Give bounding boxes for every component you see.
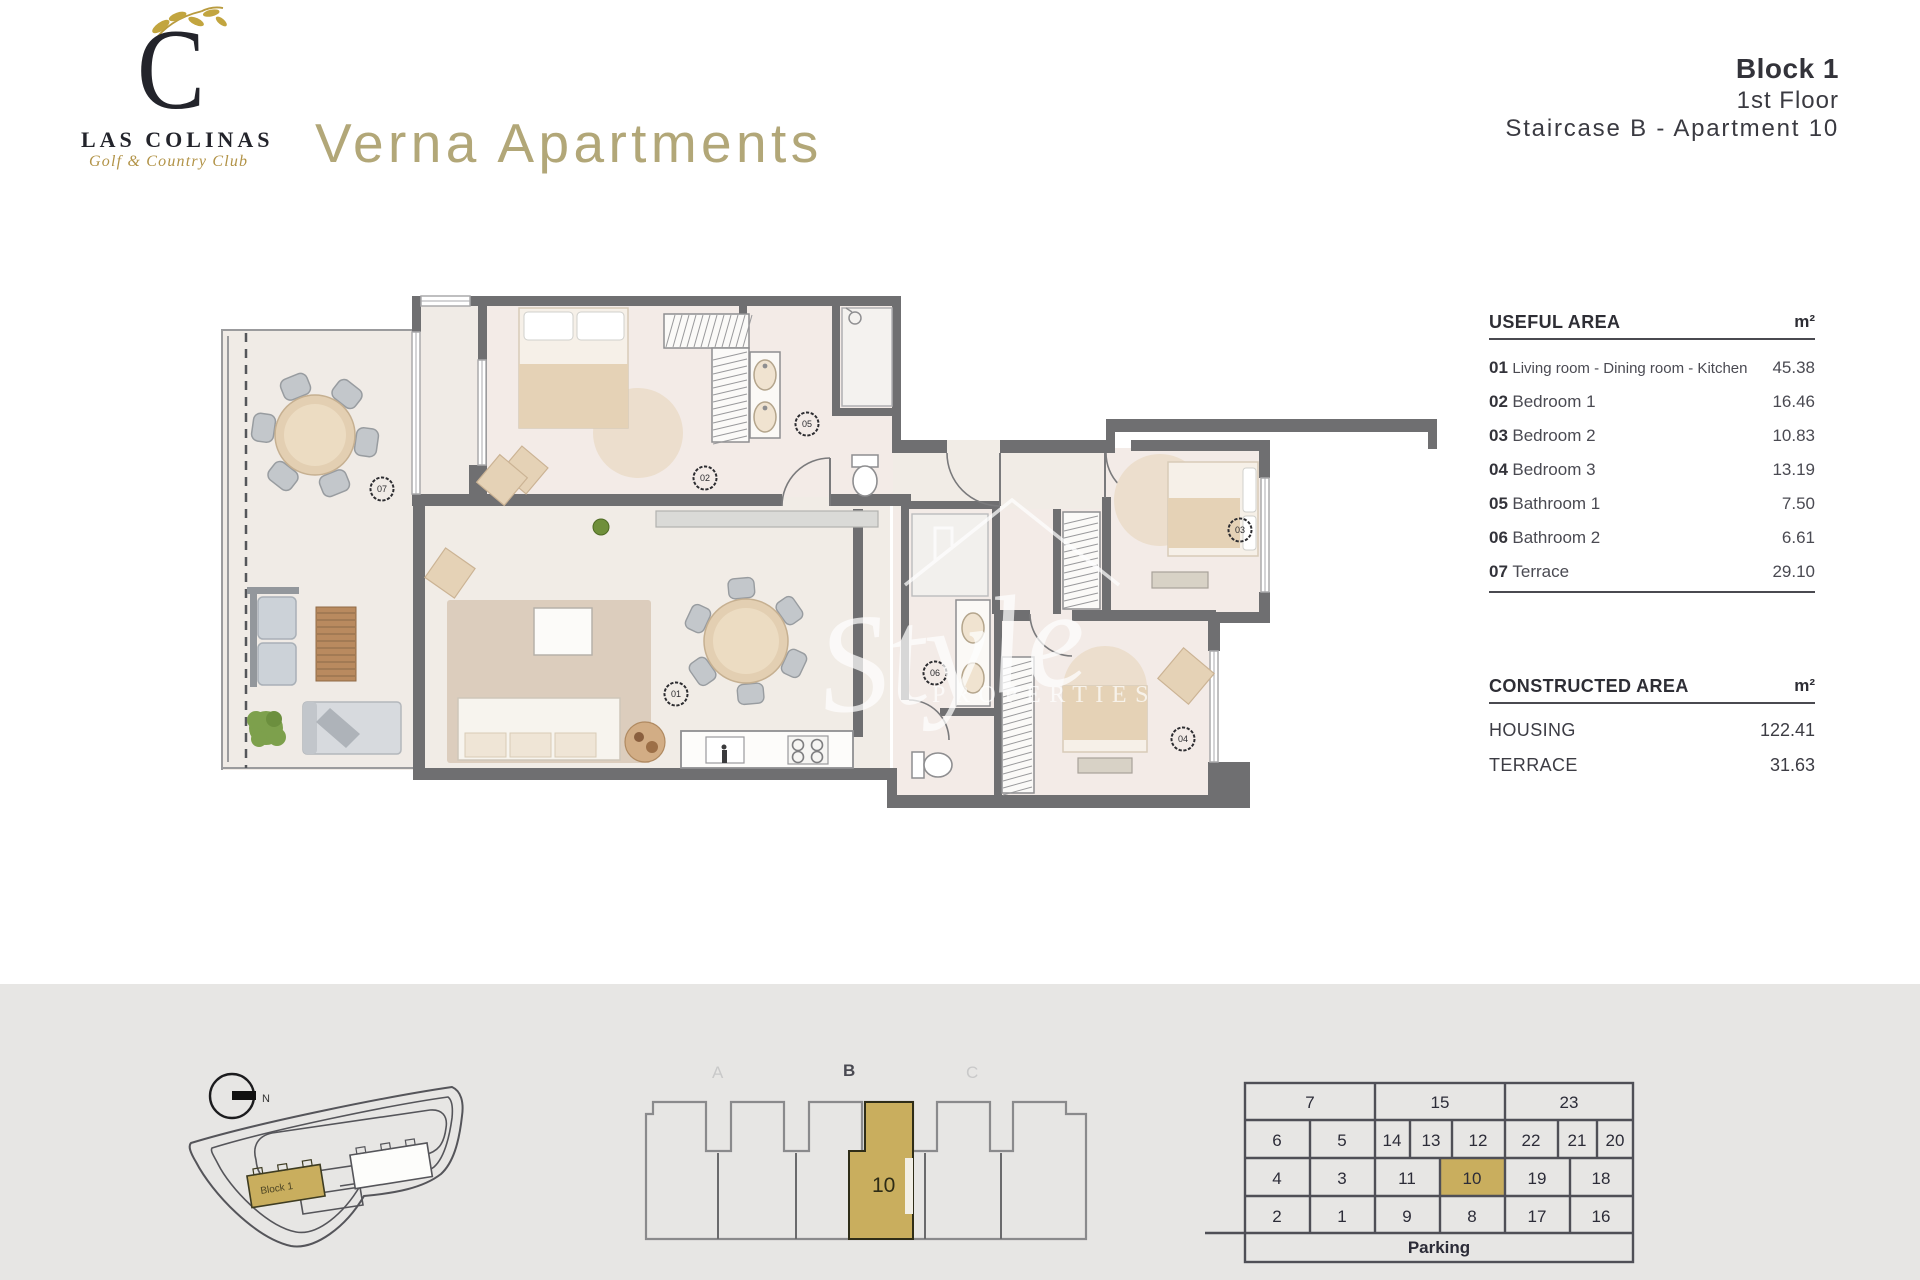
svg-text:4: 4: [1272, 1169, 1281, 1188]
svg-text:6: 6: [1272, 1131, 1281, 1150]
svg-text:23: 23: [1560, 1093, 1579, 1112]
svg-text:Parking: Parking: [1408, 1238, 1470, 1257]
svg-text:22: 22: [1522, 1131, 1541, 1150]
svg-text:10: 10: [872, 1174, 895, 1197]
svg-text:19: 19: [1528, 1169, 1547, 1188]
svg-text:18: 18: [1592, 1169, 1611, 1188]
svg-text:05: 05: [802, 419, 812, 429]
svg-text:A: A: [712, 1063, 724, 1082]
svg-text:7: 7: [1305, 1093, 1314, 1112]
svg-text:11: 11: [1398, 1169, 1416, 1188]
svg-text:9: 9: [1402, 1207, 1411, 1226]
svg-text:C: C: [966, 1063, 978, 1082]
svg-text:3: 3: [1337, 1169, 1346, 1188]
svg-text:B: B: [843, 1061, 855, 1080]
svg-text:16: 16: [1592, 1207, 1611, 1226]
svg-text:13: 13: [1422, 1131, 1441, 1150]
svg-text:21: 21: [1568, 1131, 1587, 1150]
svg-text:01: 01: [671, 689, 681, 699]
svg-text:14: 14: [1383, 1131, 1402, 1150]
svg-text:1: 1: [1337, 1207, 1346, 1226]
svg-text:20: 20: [1606, 1131, 1625, 1150]
svg-text:15: 15: [1431, 1093, 1450, 1112]
svg-text:8: 8: [1467, 1207, 1476, 1226]
svg-text:PROPERTIES: PROPERTIES: [932, 682, 1157, 708]
svg-text:Style: Style: [809, 559, 1094, 744]
svg-text:17: 17: [1528, 1207, 1547, 1226]
svg-text:2: 2: [1272, 1207, 1281, 1226]
svg-text:5: 5: [1337, 1131, 1346, 1150]
svg-text:07: 07: [377, 484, 387, 494]
svg-text:03: 03: [1235, 525, 1245, 535]
svg-text:02: 02: [700, 473, 710, 483]
svg-text:N: N: [262, 1093, 270, 1105]
svg-text:12: 12: [1469, 1131, 1488, 1150]
svg-text:10: 10: [1463, 1169, 1482, 1188]
svg-text:04: 04: [1178, 734, 1188, 744]
